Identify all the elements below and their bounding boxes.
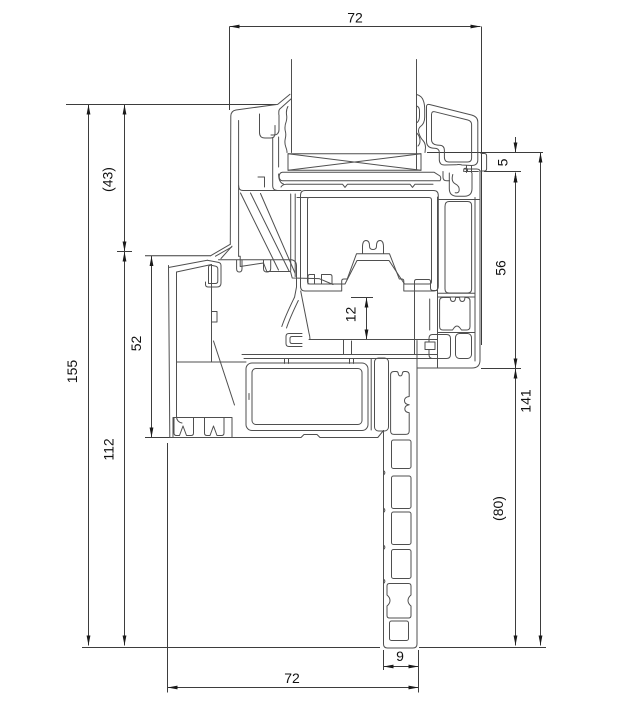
svg-text:5: 5: [495, 158, 511, 166]
svg-text:56: 56: [493, 260, 509, 276]
svg-text:72: 72: [347, 10, 363, 26]
svg-text:12: 12: [343, 307, 359, 323]
svg-text:72: 72: [284, 670, 300, 686]
svg-text:112: 112: [101, 438, 117, 461]
svg-text:(80): (80): [490, 496, 506, 521]
svg-text:52: 52: [128, 336, 144, 352]
svg-text:155: 155: [64, 360, 80, 384]
svg-text:141: 141: [518, 389, 534, 413]
svg-text:(43): (43): [100, 167, 116, 192]
svg-text:9: 9: [396, 648, 404, 664]
